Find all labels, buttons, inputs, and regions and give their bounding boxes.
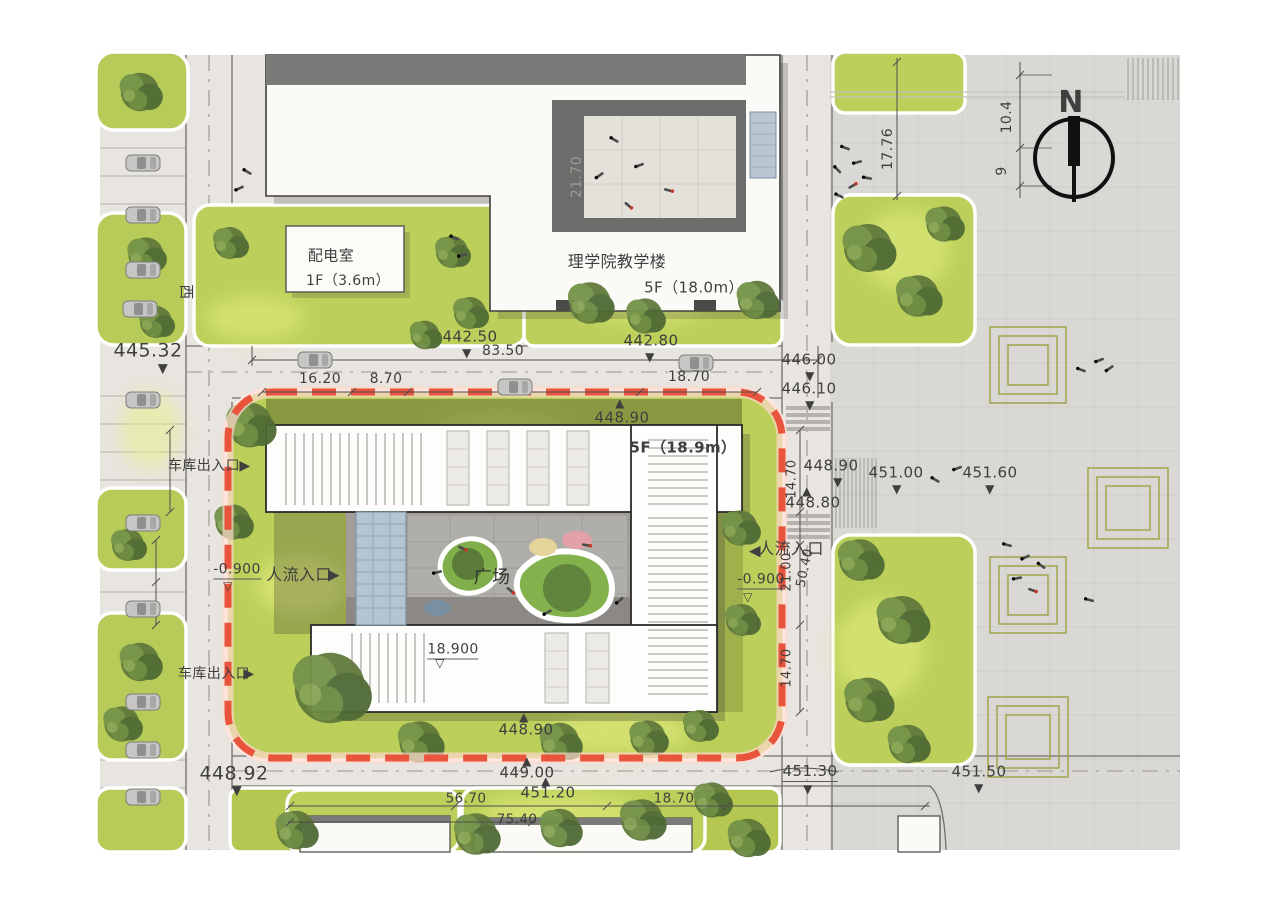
power-room-building [286,226,410,298]
site-plan-graphics [0,0,1280,905]
site-plan-page: 西445.32▼442.50▼442.80▼83.5016.208.7018.7… [0,0,1280,905]
building-shadow-strip [266,399,742,426]
